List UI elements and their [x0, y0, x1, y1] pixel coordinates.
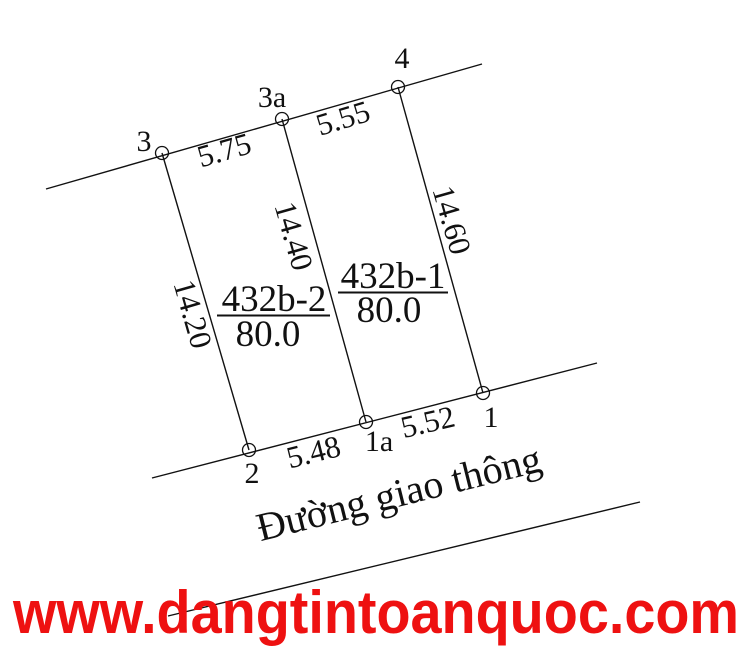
dim-label-bottom-right: 5.52 [397, 399, 458, 445]
point-label-1a: 1a [365, 425, 393, 458]
parcel-right-area: 80.0 [357, 290, 422, 331]
watermark-url: www.dangtintoanquoc.com [12, 579, 739, 646]
dim-label-side-left: 14.20 [167, 276, 220, 353]
parcel-left-area: 80.0 [236, 314, 301, 355]
point-label-3a: 3a [258, 81, 286, 114]
dim-label-side-middle: 14.40 [268, 198, 321, 275]
cadastral-plot-sketch: 3 3a 4 2 1a 1 5.75 5.55 5.48 5.52 14.20 … [0, 0, 750, 649]
point-label-4: 4 [395, 42, 410, 75]
dim-label-top-right: 5.55 [312, 93, 374, 142]
point-label-3: 3 [137, 125, 152, 158]
dim-label-top-left: 5.75 [193, 126, 255, 175]
point-label-1: 1 [484, 401, 499, 434]
parcel-diagram-canvas: 3 3a 4 2 1a 1 5.75 5.55 5.48 5.52 14.20 … [0, 0, 750, 649]
dim-label-side-right: 14.60 [426, 182, 479, 259]
point-label-2: 2 [245, 457, 260, 490]
dim-label-bottom-left: 5.48 [283, 428, 344, 475]
